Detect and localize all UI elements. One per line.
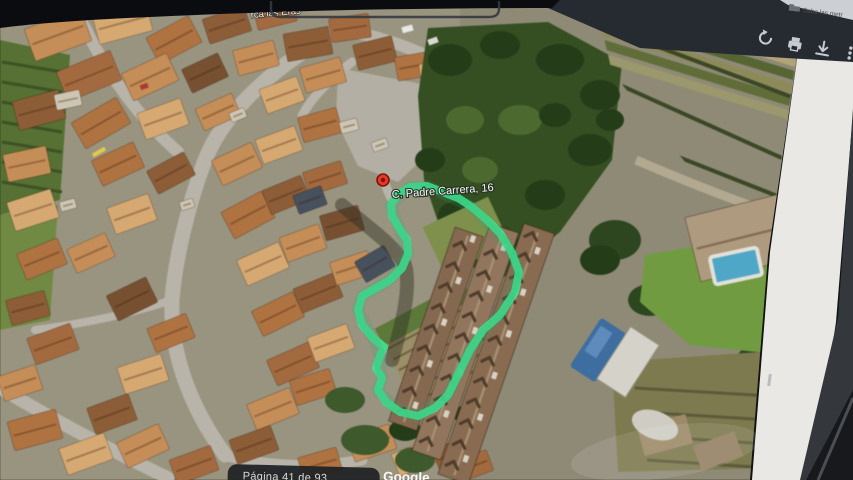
- google-watermark: Google: [383, 469, 430, 480]
- screen: C. Padre Carrera, 16 rca las Eras Google…: [0, 0, 853, 480]
- location-pin-icon[interactable]: [377, 174, 389, 186]
- page-status-label: Página 41 de 93: [243, 470, 328, 480]
- monitor-photo: C. Padre Carrera, 16 rca las Eras Google…: [0, 0, 853, 480]
